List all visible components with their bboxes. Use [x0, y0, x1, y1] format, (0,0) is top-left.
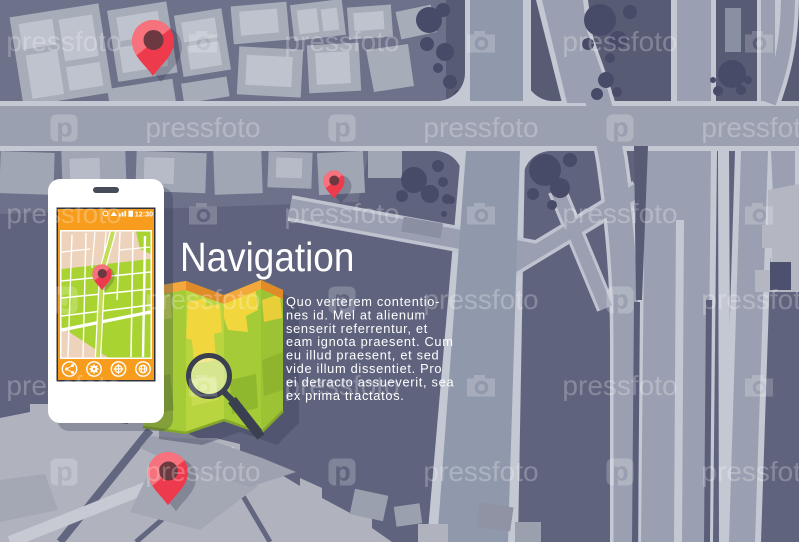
- svg-text:12:30: 12:30: [135, 210, 153, 219]
- svg-text:Navigation: Navigation: [180, 235, 354, 280]
